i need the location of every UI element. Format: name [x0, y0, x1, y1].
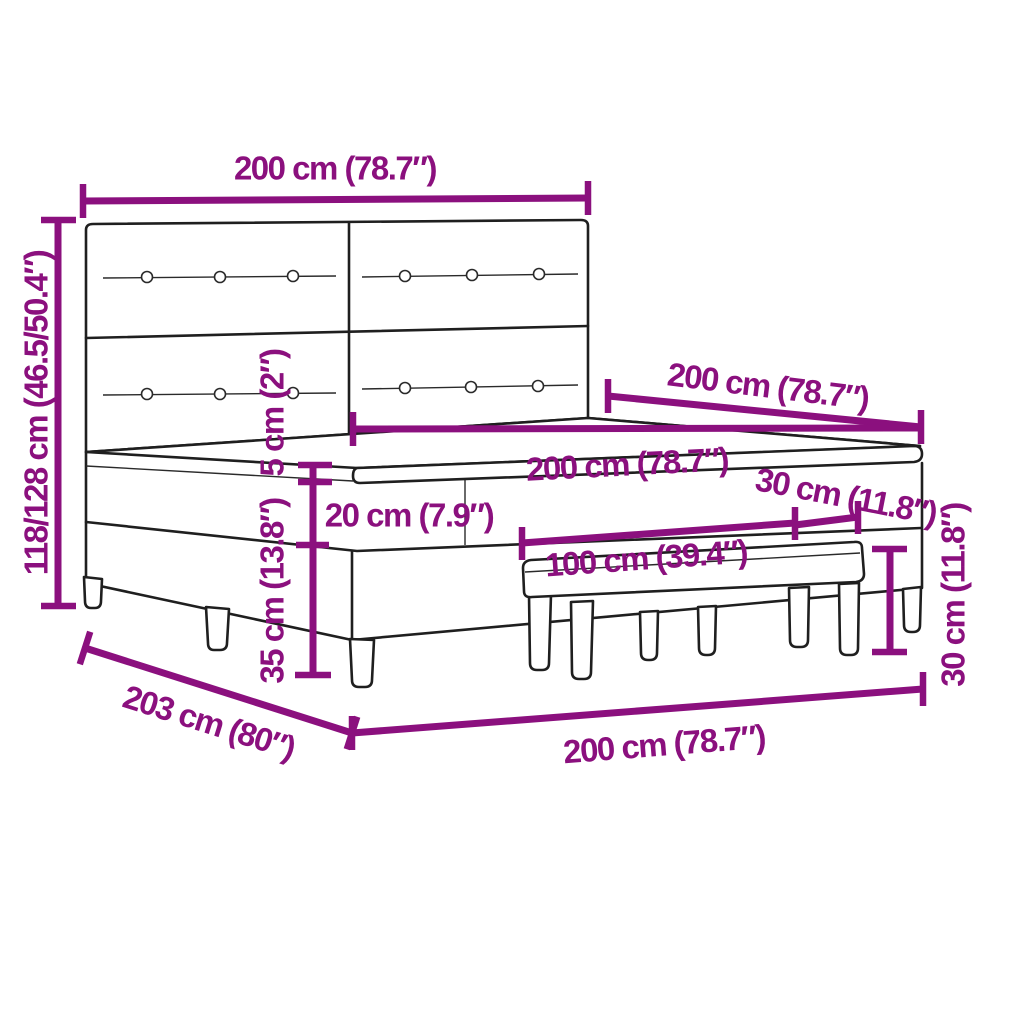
dim-label-floor-width: 200 cm (78.7″)	[562, 718, 767, 771]
dim-headboard-width: 200 cm (78.7″)	[83, 150, 588, 219]
bed-dimension-diagram: 200 cm (78.7″) 118/128 cm (46.5/50.4″) 2…	[0, 0, 1024, 1024]
dim-label-base-height: 35 cm (13.8″)	[254, 498, 291, 684]
dim-floor-width: 200 cm (78.7″)	[352, 672, 923, 770]
bench-legs	[529, 583, 859, 679]
diagram-canvas: 200 cm (78.7″) 118/128 cm (46.5/50.4″) 2…	[0, 0, 1024, 1024]
dim-label-mattress-height: 20 cm (7.9″)	[325, 497, 494, 534]
dim-label-bench-height: 30 cm (11.8″)	[935, 503, 972, 687]
bed-drawing	[84, 220, 922, 687]
dim-label-total-height: 118/128 cm (46.5/50.4″)	[18, 250, 55, 575]
dim-total-height: 118/128 cm (46.5/50.4″)	[18, 220, 77, 606]
dim-label-headboard-width: 200 cm (78.7″)	[234, 150, 437, 187]
dim-label-topper-height: 5 cm (2″)	[254, 349, 291, 477]
headboard	[86, 220, 588, 452]
